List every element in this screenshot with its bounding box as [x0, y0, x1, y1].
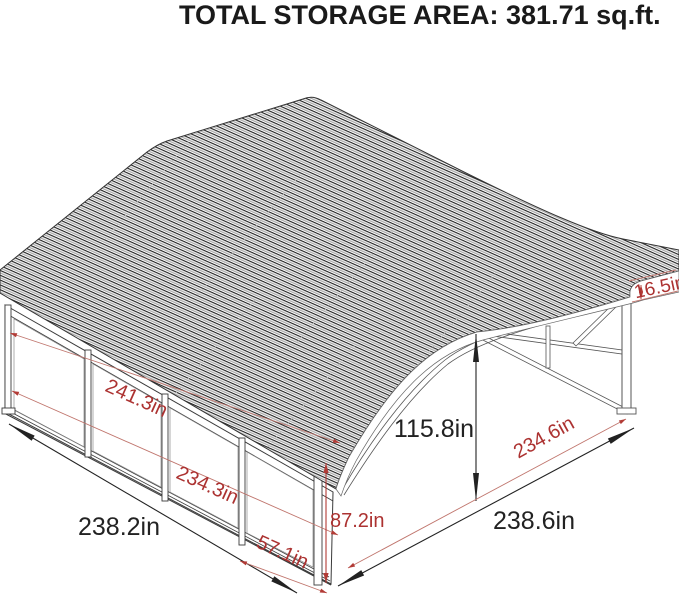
dim-side-wall-overall-label: 238.2in — [78, 513, 160, 541]
dimension-open-side-overall: 238.6in — [338, 428, 634, 586]
carport-drawing: 238.2in 238.6in 115.8in 241.3in 234.3in … — [0, 0, 679, 603]
dim-open-side-inner-label: 234.6in — [510, 412, 578, 463]
dim-corner-height-label: 87.2in — [330, 510, 385, 532]
carport-dimension-diagram: TOTAL STORAGE AREA: 381.71 sq.ft. — [0, 0, 679, 603]
dim-peak-height-label: 115.8in — [394, 415, 474, 443]
dimension-open-side-inner: 234.6in — [348, 412, 626, 568]
dim-open-side-overall-label: 238.6in — [493, 507, 575, 535]
